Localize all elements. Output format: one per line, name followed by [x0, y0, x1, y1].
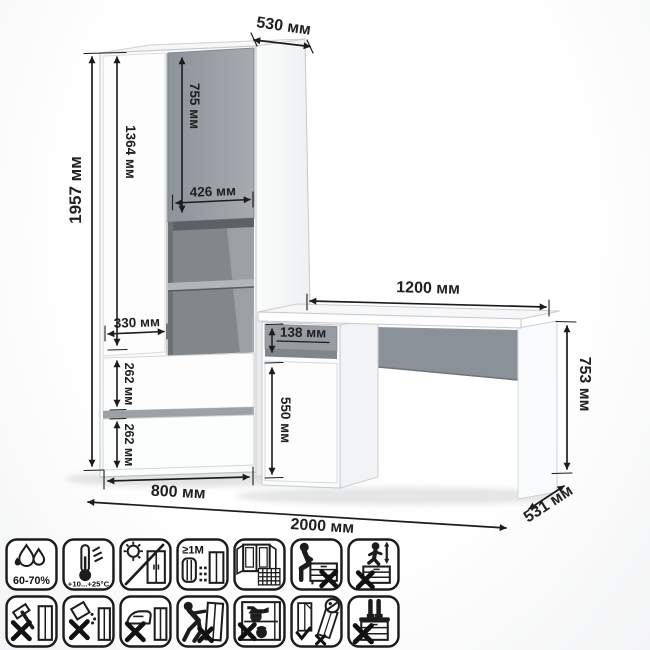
dim-1200-label: 1200 мм [396, 279, 460, 298]
dim-262-lower-label: 262 мм [122, 424, 136, 467]
dim-138-label: 138 мм [280, 325, 327, 341]
humidity-icon: 60-70% [5, 538, 58, 591]
no-direct-sunlight-icon [119, 538, 172, 591]
dim-426-label: 426 мм [189, 183, 236, 200]
dim-330-label: 330 мм [113, 314, 160, 331]
no-spilling-icon [62, 595, 115, 648]
no-overloading-icon [233, 595, 286, 648]
furniture-diagram-page: 530 мм 1957 мм 1364 мм 755 мм 426 мм [0, 0, 650, 650]
temperature-icon: +10...+25°C [62, 538, 115, 591]
no-hot-objects-icon [119, 595, 172, 648]
dim-530-label: 530 мм [255, 14, 312, 38]
no-impact-icon [5, 595, 58, 648]
dim-753: 753 мм [552, 322, 593, 474]
dim-1957-label: 1957 мм [66, 156, 85, 224]
dim-550-label: 550 мм [278, 397, 293, 443]
desk-back-panel [378, 327, 518, 380]
no-dragging-icon [176, 595, 229, 648]
anti-tip-anchor-icon [290, 595, 343, 648]
temperature-label: +10...+25°C [68, 579, 110, 588]
ventilation-icon [233, 538, 286, 591]
no-jumping-icon [347, 538, 400, 591]
desk-right-leg [518, 321, 557, 499]
dim-755-label: 755 мм [187, 83, 202, 129]
desk-pedestal-door [265, 361, 337, 483]
care-icons-row-2 [5, 595, 400, 648]
wardrobe-open-shelves [168, 218, 254, 356]
dim-1364-label: 1364 мм [123, 125, 138, 179]
dim-800-label: 800 мм [150, 483, 206, 503]
dim-2000: 2000 мм [88, 502, 506, 537]
heat-source-distance-icon: ≥1M [176, 538, 229, 591]
wardrobe-left-door [103, 53, 165, 356]
humidity-label: 60-70% [13, 575, 50, 587]
dim-262-upper-label: 262 мм [122, 363, 136, 406]
dim-753-label: 753 мм [576, 357, 593, 412]
distance-label: ≥1M [182, 544, 204, 556]
no-sitting-icon [290, 538, 343, 591]
desk-pedestal-side [340, 318, 378, 488]
dim-2000-label: 2000 мм [290, 516, 355, 537]
no-standing-icon [347, 595, 400, 648]
care-icons-row-1: 60-70% +10...+25°C [5, 538, 400, 591]
